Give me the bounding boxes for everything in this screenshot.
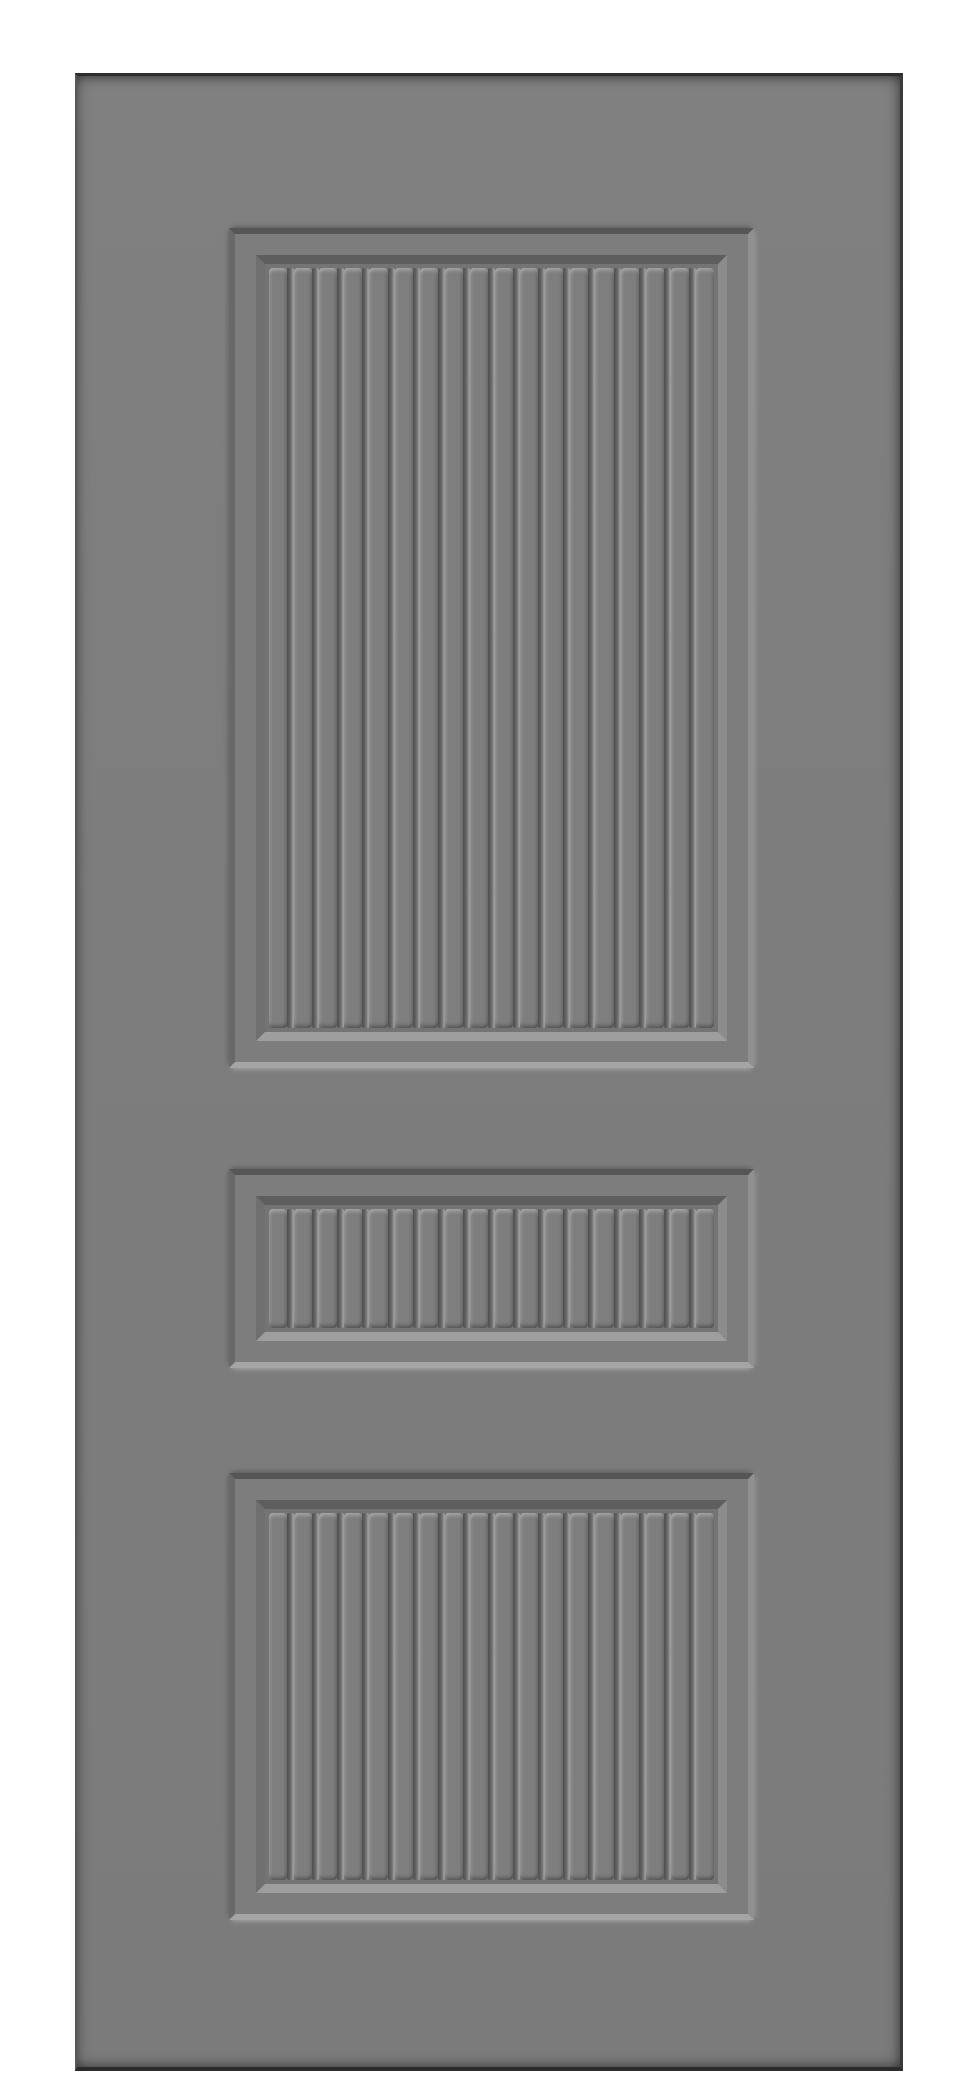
slat (570, 1513, 588, 1880)
slat (319, 268, 337, 1028)
slat (269, 268, 287, 1028)
slat-groove (513, 1209, 520, 1328)
slat (470, 268, 488, 1028)
slat-field (265, 264, 718, 1032)
slat-groove (614, 1209, 621, 1328)
slat-groove (388, 1209, 395, 1328)
slat (595, 268, 613, 1028)
panel-inner-bevel (256, 255, 727, 1041)
slat (369, 1209, 387, 1328)
slat-groove (287, 1513, 294, 1880)
slat-groove (362, 268, 369, 1028)
slat-groove (488, 268, 495, 1028)
slat (395, 1513, 413, 1880)
slat-groove (664, 1513, 671, 1880)
slat (570, 268, 588, 1028)
slat-groove (438, 268, 445, 1028)
slat-groove (362, 1513, 369, 1880)
slat (470, 1513, 488, 1880)
slat-groove (664, 268, 671, 1028)
slat-groove (438, 1209, 445, 1328)
slat-groove (337, 268, 344, 1028)
slat-groove (538, 268, 545, 1028)
slat-groove (513, 1513, 520, 1880)
slat-groove (614, 1513, 621, 1880)
slat-groove (488, 1209, 495, 1328)
slat (369, 268, 387, 1028)
slat (595, 1513, 613, 1880)
slat (395, 1209, 413, 1328)
slat (445, 268, 463, 1028)
slat-groove (463, 1209, 470, 1328)
slat (545, 268, 563, 1028)
slat (520, 1209, 538, 1328)
slat (570, 1209, 588, 1328)
slat-groove (287, 1209, 294, 1328)
panel-middle (229, 1169, 754, 1368)
slat-groove (312, 1513, 319, 1880)
slat-field (265, 1509, 718, 1884)
slat (621, 1513, 639, 1880)
slat (696, 268, 714, 1028)
slat (520, 268, 538, 1028)
slat (545, 1513, 563, 1880)
slat (595, 1209, 613, 1328)
slat (671, 268, 689, 1028)
slat-groove (689, 1209, 696, 1328)
panel-top (229, 228, 754, 1068)
slat-groove (337, 1209, 344, 1328)
slat (420, 1209, 438, 1328)
slat-groove (664, 1209, 671, 1328)
slat-groove (337, 1513, 344, 1880)
slat-groove (614, 268, 621, 1028)
slat (671, 1513, 689, 1880)
slat (671, 1209, 689, 1328)
slat-groove (689, 268, 696, 1028)
slat-field (265, 1205, 718, 1332)
slat (445, 1513, 463, 1880)
slat-groove (513, 268, 520, 1028)
slat-groove (388, 1513, 395, 1880)
slat-groove (639, 268, 646, 1028)
slat (621, 1209, 639, 1328)
slat (369, 1513, 387, 1880)
slat (495, 268, 513, 1028)
slat-groove (413, 268, 420, 1028)
slat (420, 268, 438, 1028)
slat-groove (639, 1209, 646, 1328)
slat (646, 1513, 664, 1880)
slat (621, 268, 639, 1028)
slat-groove (438, 1513, 445, 1880)
product-image-stage (0, 0, 980, 2100)
slat (495, 1513, 513, 1880)
slat-groove (488, 1513, 495, 1880)
slat-groove (639, 1513, 646, 1880)
slat (445, 1209, 463, 1328)
slat-groove (689, 1513, 696, 1880)
slat-groove (588, 268, 595, 1028)
slat (470, 1209, 488, 1328)
slat (269, 1513, 287, 1880)
panel-inner-bevel (256, 1196, 727, 1341)
slat (269, 1209, 287, 1328)
slat-groove (563, 1209, 570, 1328)
panel-bottom (229, 1473, 754, 1920)
slat-groove (362, 1209, 369, 1328)
slat (646, 1209, 664, 1328)
slat-groove (463, 268, 470, 1028)
slat (395, 268, 413, 1028)
slat-groove (588, 1209, 595, 1328)
slat (696, 1209, 714, 1328)
slat (646, 268, 664, 1028)
slat-groove (312, 268, 319, 1028)
slat-groove (312, 1209, 319, 1328)
slat (319, 1209, 337, 1328)
slat (520, 1513, 538, 1880)
slat (545, 1209, 563, 1328)
slat-groove (388, 268, 395, 1028)
slat-groove (563, 1513, 570, 1880)
slat (319, 1513, 337, 1880)
slat (420, 1513, 438, 1880)
slat-groove (413, 1513, 420, 1880)
slat-groove (538, 1513, 545, 1880)
slat (344, 268, 362, 1028)
slat-groove (538, 1209, 545, 1328)
slat (696, 1513, 714, 1880)
slat-groove (588, 1513, 595, 1880)
panel-inner-bevel (256, 1500, 727, 1893)
slat (344, 1513, 362, 1880)
slat (344, 1209, 362, 1328)
slat-groove (287, 268, 294, 1028)
slat (495, 1209, 513, 1328)
slat (294, 268, 312, 1028)
slat (294, 1209, 312, 1328)
slat-groove (563, 268, 570, 1028)
slat (294, 1513, 312, 1880)
door-slab (75, 73, 903, 2071)
slat-groove (463, 1513, 470, 1880)
slat-groove (413, 1209, 420, 1328)
